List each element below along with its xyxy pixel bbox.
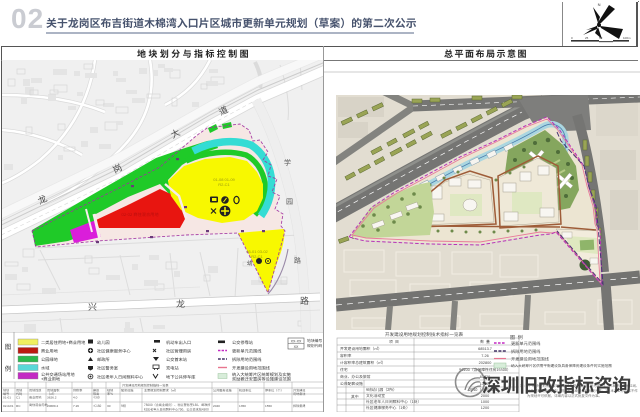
svg-text:01-01: 01-01 (3, 396, 11, 400)
svg-text:68513.7: 68513.7 (478, 347, 492, 351)
svg-text:20689.2: 20689.2 (47, 404, 58, 408)
svg-text:N: N (598, 2, 601, 7)
svg-text:R2-C1: R2-C1 (218, 182, 230, 187)
svg-text:7.26: 7.26 (481, 354, 488, 358)
svg-text:C1: C1 (16, 396, 20, 400)
svg-text:100m: 100m (623, 36, 631, 40)
svg-text:RC: RC (16, 404, 21, 408)
svg-text:R2-C1: R2-C1 (251, 254, 263, 259)
svg-text:2040: 2040 (213, 404, 220, 408)
svg-text:25: 25 (585, 36, 589, 40)
svg-text:50: 50 (599, 36, 603, 40)
svg-text:1200: 1200 (481, 406, 489, 410)
svg-text:202800: 202800 (479, 361, 492, 365)
svg-text:1350: 1350 (239, 404, 246, 408)
svg-text:0: 0 (571, 36, 573, 40)
svg-text:1550: 1550 (265, 404, 272, 408)
svg-text:XX: XX (294, 345, 299, 349)
svg-text:7.26: 7.26 (73, 404, 79, 408)
svg-text:02-02/1: 02-02/1 (3, 404, 14, 408)
svg-text:4.0: 4.0 (73, 396, 78, 400)
svg-text:30: 30 (107, 404, 111, 408)
svg-text:3626.2: 3626.2 (47, 396, 57, 400)
svg-text:1000: 1000 (481, 400, 489, 404)
svg-text:XX-XX: XX-XX (291, 339, 302, 343)
